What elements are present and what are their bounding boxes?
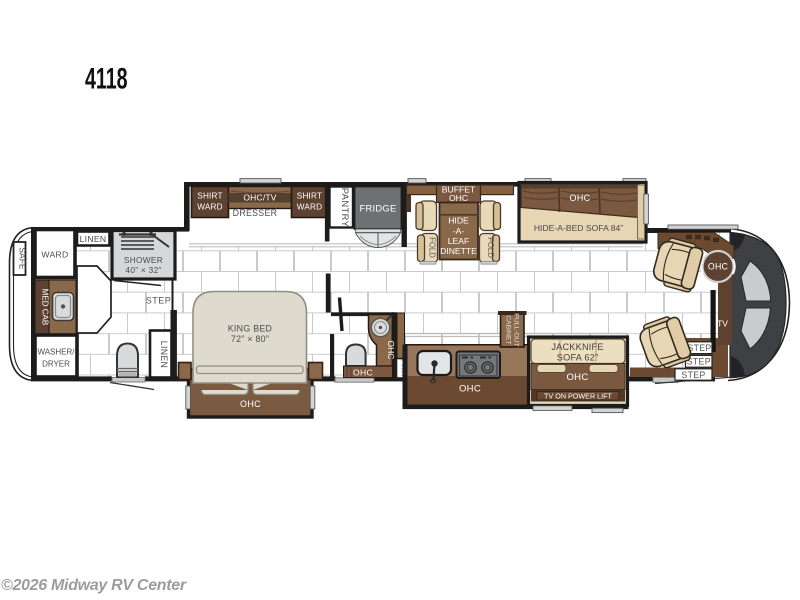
svg-text:STEP: STEP (146, 296, 172, 306)
svg-text:OHC: OHC (459, 384, 481, 395)
svg-text:DRYER: DRYER (42, 360, 70, 369)
svg-text:OHC: OHC (449, 193, 468, 203)
svg-text:STEP: STEP (681, 370, 705, 380)
svg-text:SHOWER: SHOWER (124, 255, 163, 265)
svg-text:SOFA 62”: SOFA 62” (557, 353, 598, 363)
svg-text:OHC: OHC (240, 399, 261, 409)
svg-text:CABINET: CABINET (505, 315, 512, 344)
svg-text:SHIRT: SHIRT (297, 192, 322, 201)
svg-text:FOLD: FOLD (428, 237, 437, 258)
svg-text:MED CAB: MED CAB (41, 289, 50, 325)
svg-text:LINEN: LINEN (159, 341, 169, 368)
svg-text:HIDE: HIDE (448, 216, 469, 226)
svg-text:HIDE-A-BED SOFA 84”: HIDE-A-BED SOFA 84” (534, 223, 623, 233)
svg-text:-A-: -A- (453, 226, 465, 236)
svg-text:WARD: WARD (197, 203, 223, 212)
svg-text:OHC: OHC (566, 372, 588, 383)
svg-text:SHIRT: SHIRT (197, 192, 222, 201)
svg-text:SAFE: SAFE (18, 247, 28, 270)
svg-text:TV: TV (717, 319, 728, 329)
svg-text:WASHER/: WASHER/ (37, 348, 75, 357)
svg-text:72” × 80”: 72” × 80” (231, 334, 269, 344)
svg-text:40” × 32”: 40” × 32” (125, 265, 161, 275)
svg-text:OHC/TV: OHC/TV (243, 193, 276, 203)
svg-text:KING BED: KING BED (228, 324, 272, 334)
svg-text:FRIDGE: FRIDGE (360, 204, 397, 214)
svg-text:TV ON POWER LIFT: TV ON POWER LIFT (544, 392, 612, 401)
svg-text:JACKKNIFE: JACKKNIFE (551, 342, 603, 352)
svg-text:FOLD: FOLD (486, 237, 495, 258)
svg-text:4118: 4118 (85, 62, 128, 95)
svg-text:LINEN: LINEN (80, 234, 107, 244)
svg-text:OHC: OHC (570, 193, 591, 203)
svg-text:OHC: OHC (386, 341, 396, 360)
svg-text:LEAF: LEAF (448, 236, 470, 246)
svg-text:OHC: OHC (708, 262, 729, 272)
svg-text:WARD: WARD (41, 250, 68, 260)
svg-text:WARD: WARD (297, 203, 323, 212)
svg-text:OHC: OHC (353, 368, 373, 378)
svg-text:DINETTE: DINETTE (440, 246, 477, 256)
svg-text:PANTRY: PANTRY (340, 188, 351, 228)
svg-text:PULL-OUT: PULL-OUT (513, 313, 520, 347)
svg-text:DRESSER: DRESSER (233, 208, 278, 218)
